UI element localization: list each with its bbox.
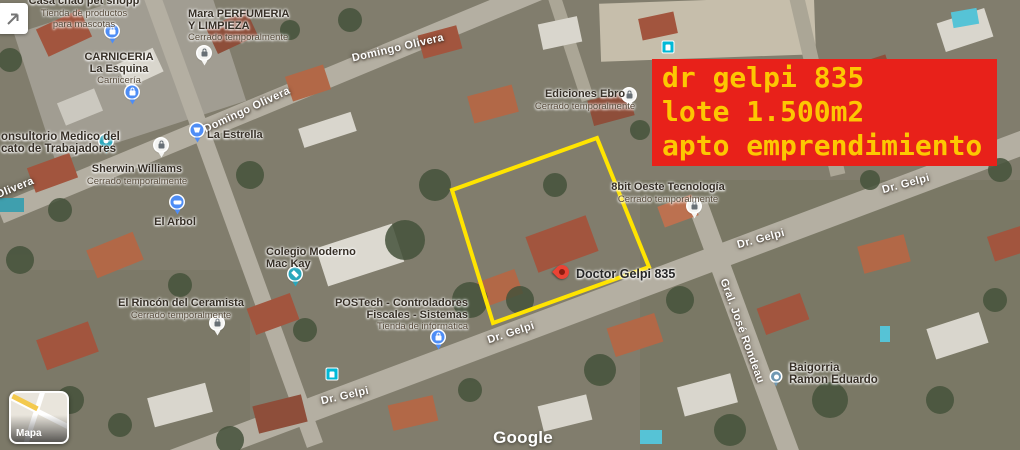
poi-label-postech[interactable]: POSTech - Controladores Fiscales - Siste… [335,298,468,333]
school-pin[interactable] [289,268,302,287]
poi-label-baigorria[interactable]: Baigorria Ramon Eduardo [789,363,878,386]
poi-label-ediciones-ebro[interactable]: Ediciones Ebro Cerrado temporalmente [535,89,635,112]
poi-label-casa-chao[interactable]: Casa chão pet shopp Tienda de productos … [29,0,140,31]
grocery-cart-pin[interactable] [191,124,204,143]
poi-label-consultorio-medico[interactable]: onsultorio Medico del cato de Trabajador… [1,132,120,155]
status-closed: Cerrado temporalmente [188,32,289,44]
poi-label-el-arbol[interactable]: El Arbol [154,217,196,229]
property-marker-pin[interactable] [552,265,572,284]
shopping-bag-icon [435,336,441,341]
map-view-toggle-thumbnail[interactable]: Mapa [9,391,69,444]
cart-icon [194,128,201,133]
bus-stop-icon[interactable] [662,41,675,54]
promo-banner: dr gelpi 835 lote 1.500m2 apto emprendim… [652,59,997,166]
banner-line-apto: apto emprendimiento [662,129,987,163]
status-closed: Cerrado temporalmente [87,176,187,188]
google-logo[interactable]: Google [493,428,553,448]
shopping-bag-icon [129,91,135,96]
property-marker-label[interactable]: Doctor Gelpi 835 [576,269,675,281]
expand-arrow-control[interactable] [0,3,28,34]
poi-label-carniceria[interactable]: CARNICERIA La Esquina Carnicería [84,52,153,87]
poi-dot-pin[interactable] [771,372,781,387]
poi-label-colegio-moderno[interactable]: Colegio Moderno Mac Kay [266,247,356,270]
shopping-bag-pin-closed[interactable] [198,47,211,66]
shopping-bag-icon [158,144,164,149]
status-closed: Cerrado temporalmente [535,101,635,113]
banner-line-address: dr gelpi 835 [662,61,987,95]
poi-label-sherwin-williams[interactable]: Sherwin Williams Cerrado temporalmente [87,164,187,187]
shopping-bag-pin[interactable] [126,86,139,105]
shopping-bag-pin-closed[interactable] [155,139,168,158]
arrow-up-right-icon [4,10,22,28]
shopping-bag-icon [214,322,220,327]
minimap-label: Mapa [16,428,42,439]
couch-icon [173,200,181,204]
status-closed: Cerrado temporalmente [611,194,725,206]
banner-line-lot-size: lote 1.500m2 [662,95,987,129]
status-closed: Cerrado temporalmente [118,310,244,322]
bus-stop-icon[interactable] [326,368,339,381]
dot-icon [774,374,779,379]
shopping-bag-icon [201,52,207,57]
poi-label-el-rincon[interactable]: El Rincón del Ceramista Cerrado temporal… [118,298,244,321]
furniture-pin[interactable] [171,196,184,215]
poi-label-8bit-oeste[interactable]: 8bit Oeste Tecnología Cerrado temporalme… [611,182,725,205]
shopping-bag-icon [691,205,697,210]
graduation-cap-icon [291,270,299,278]
map-canvas[interactable]: Domingo Olivera Domingo Olivera Olivera … [0,0,1020,450]
poi-label-la-estrella[interactable]: La Estrella [207,130,263,142]
poi-label-mara-perfumeria[interactable]: Mara PERFUMERIA Y LIMPIEZA Cerrado tempo… [188,9,289,44]
shopping-bag-pin[interactable] [432,331,445,350]
